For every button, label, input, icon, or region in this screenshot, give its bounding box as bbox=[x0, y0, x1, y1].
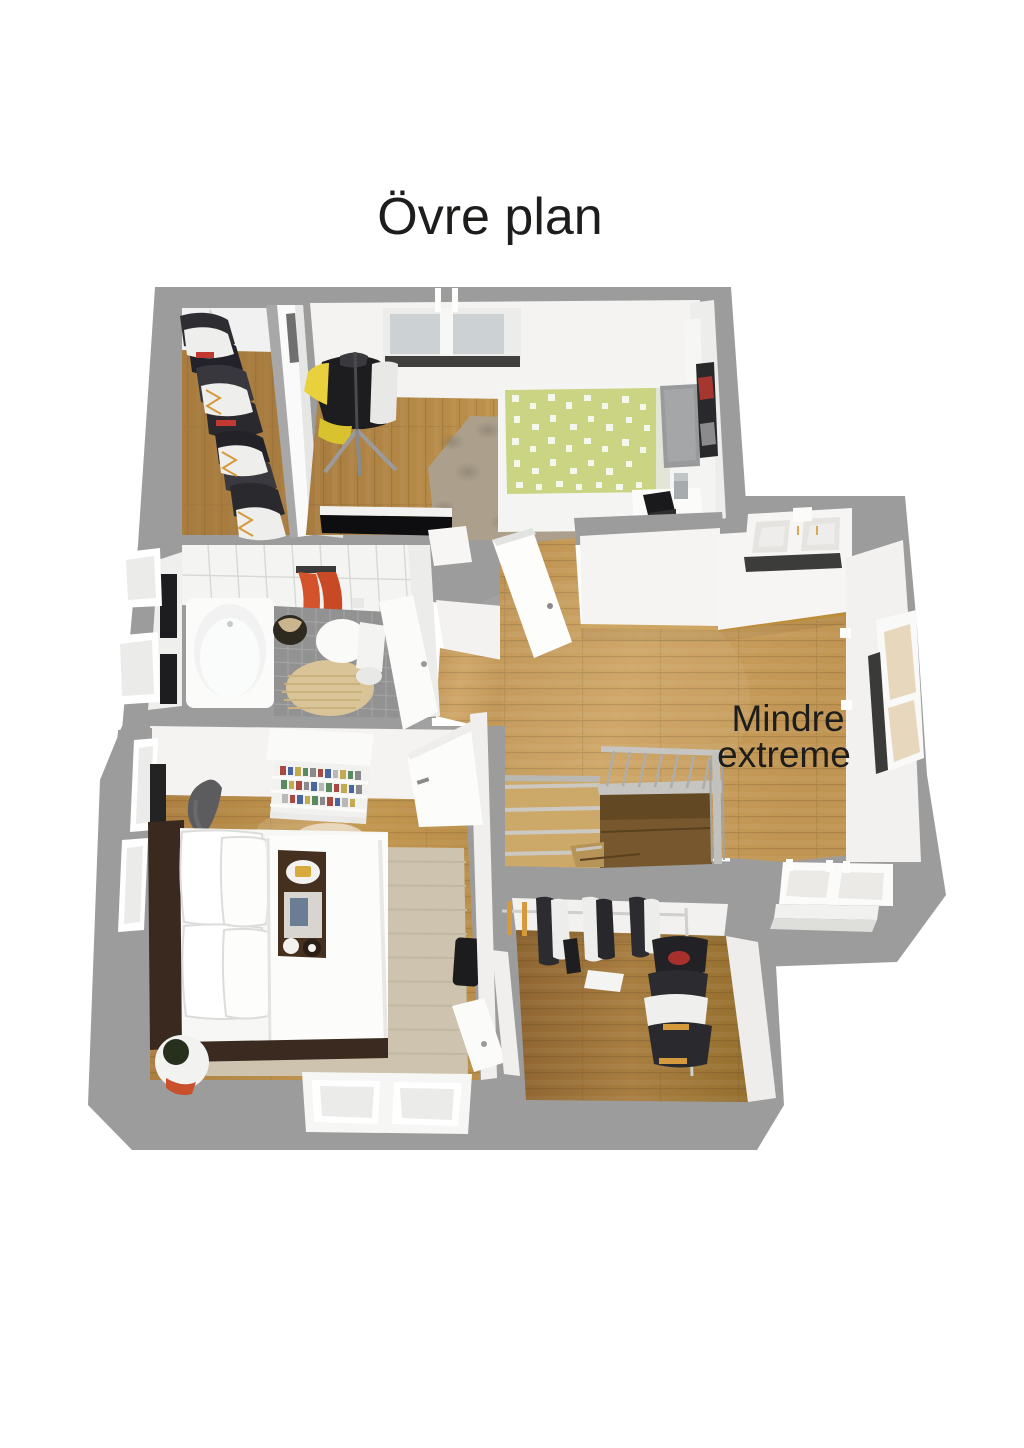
svg-text:Övre plan: Övre plan bbox=[377, 188, 602, 246]
svg-text:Mindre: Mindre bbox=[731, 698, 844, 739]
svg-text:extreme: extreme bbox=[717, 734, 851, 775]
